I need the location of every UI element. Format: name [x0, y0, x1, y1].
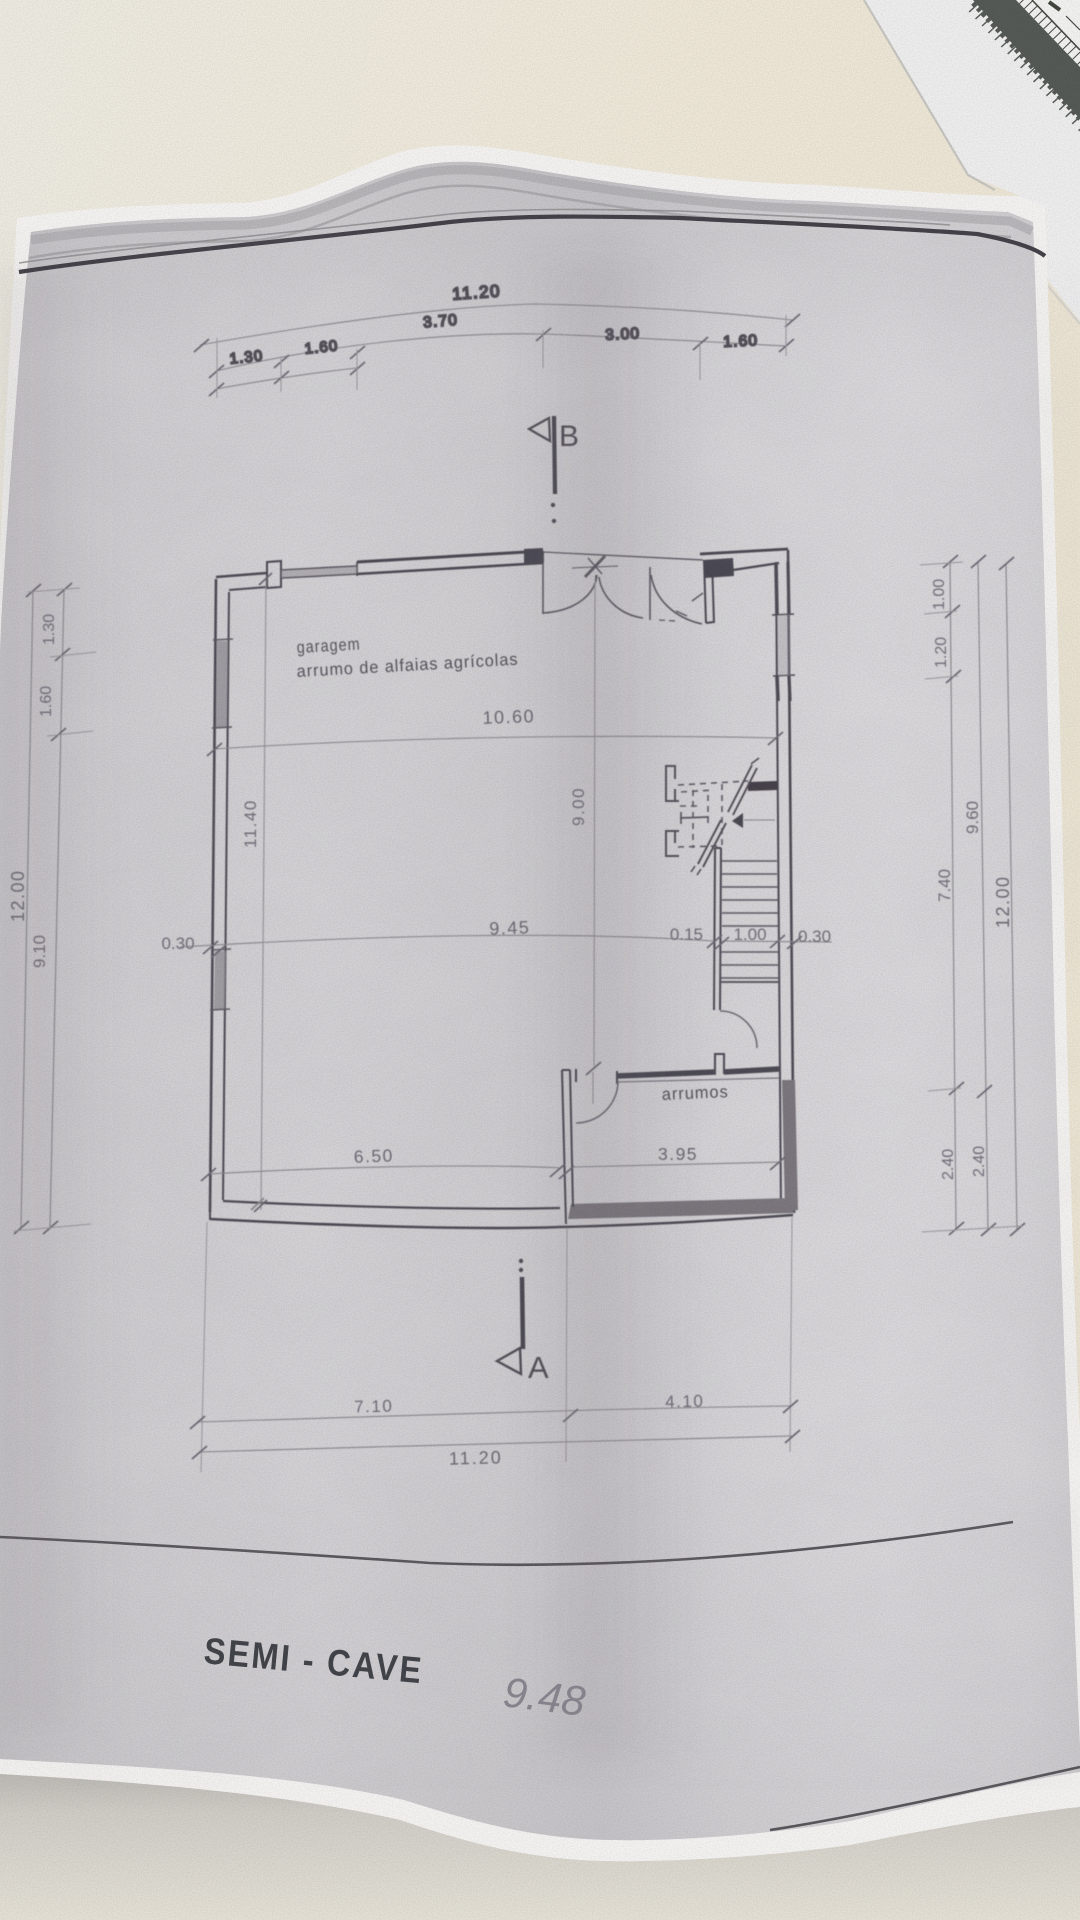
- svg-text:9.48: 9.48: [501, 1668, 588, 1725]
